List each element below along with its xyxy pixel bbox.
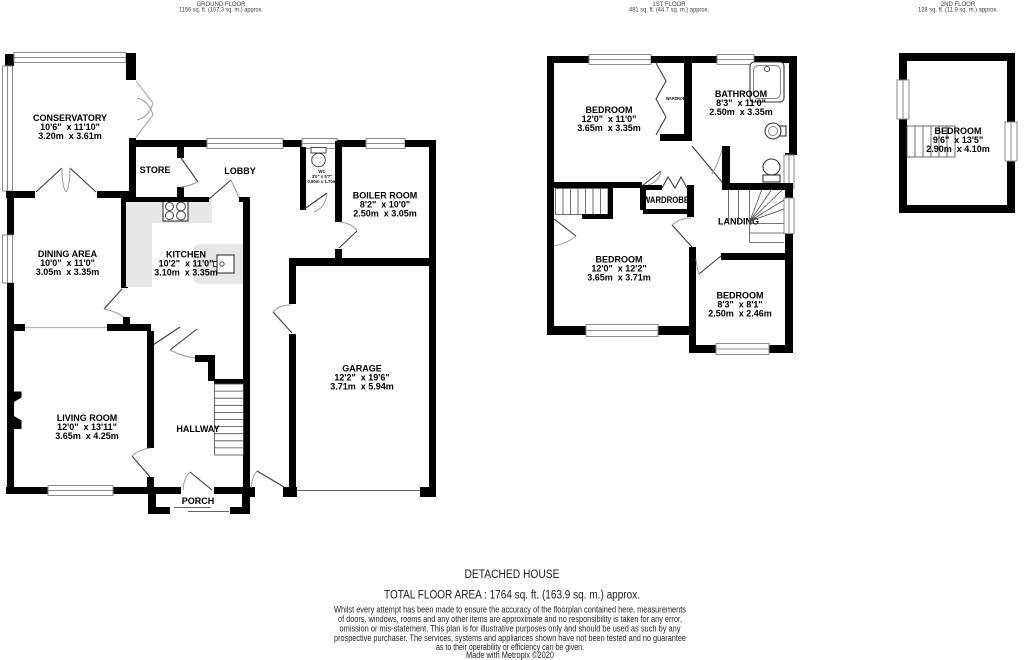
svg-text:3.20m x 3.61m: 3.20m x 3.61m bbox=[38, 131, 102, 141]
svg-text:STORE: STORE bbox=[140, 165, 171, 175]
svg-text:HALLWAY: HALLWAY bbox=[176, 424, 219, 434]
svg-text:DETACHED HOUSE: DETACHED HOUSE bbox=[465, 569, 560, 581]
svg-text:WARDROBE: WARDROBE bbox=[643, 195, 689, 205]
svg-text:2.50m x 3.05m: 2.50m x 3.05m bbox=[353, 209, 417, 219]
svg-text:of doors, windows, rooms and a: of doors, windows, rooms and any other i… bbox=[338, 614, 682, 624]
svg-text:2.50m x 2.46m: 2.50m x 2.46m bbox=[708, 308, 772, 318]
svg-text:PORCH: PORCH bbox=[182, 496, 215, 506]
svg-text:3.65m x 3.35m: 3.65m x 3.35m bbox=[577, 123, 641, 133]
svg-text:omission or mis-statement. Thi: omission or mis-statement. This plan is … bbox=[340, 624, 681, 634]
svg-text:3.65m x 4.25m: 3.65m x 4.25m bbox=[55, 431, 119, 441]
svg-text:2.90m x 4.10m: 2.90m x 4.10m bbox=[926, 144, 990, 154]
svg-text:Made with Metropix ©2020: Made with Metropix ©2020 bbox=[466, 650, 554, 660]
svg-text:2.50m x 3.35m: 2.50m x 3.35m bbox=[709, 107, 773, 117]
svg-text:WARDROBE: WARDROBE bbox=[666, 96, 688, 101]
svg-text:3.05m x 3.35m: 3.05m x 3.35m bbox=[36, 267, 100, 277]
svg-text:3.65m x 3.71m: 3.65m x 3.71m bbox=[587, 273, 651, 283]
svg-text:LOBBY: LOBBY bbox=[224, 166, 256, 176]
svg-text:TOTAL FLOOR AREA : 1764 sq. ft: TOTAL FLOOR AREA : 1764 sq. ft. (163.9 s… bbox=[384, 590, 640, 602]
svg-text:1156 sq. ft. (107.3 sq. m.) ap: 1156 sq. ft. (107.3 sq. m.) approx. bbox=[179, 8, 263, 14]
svg-text:0.90m x 1.70m: 0.90m x 1.70m bbox=[307, 179, 336, 184]
svg-text:3.10m x 3.35m: 3.10m x 3.35m bbox=[154, 268, 218, 278]
svg-text:481 sq. ft. (44.7 sq. m.) appr: 481 sq. ft. (44.7 sq. m.) approx. bbox=[629, 8, 709, 14]
svg-text:3.71m x 5.94m: 3.71m x 5.94m bbox=[330, 381, 394, 391]
svg-text:128 sq. ft. (11.9 sq. m.) appr: 128 sq. ft. (11.9 sq. m.) approx. bbox=[918, 8, 998, 14]
svg-text:Whilst every attempt has been: Whilst every attempt has been made to en… bbox=[334, 605, 686, 615]
